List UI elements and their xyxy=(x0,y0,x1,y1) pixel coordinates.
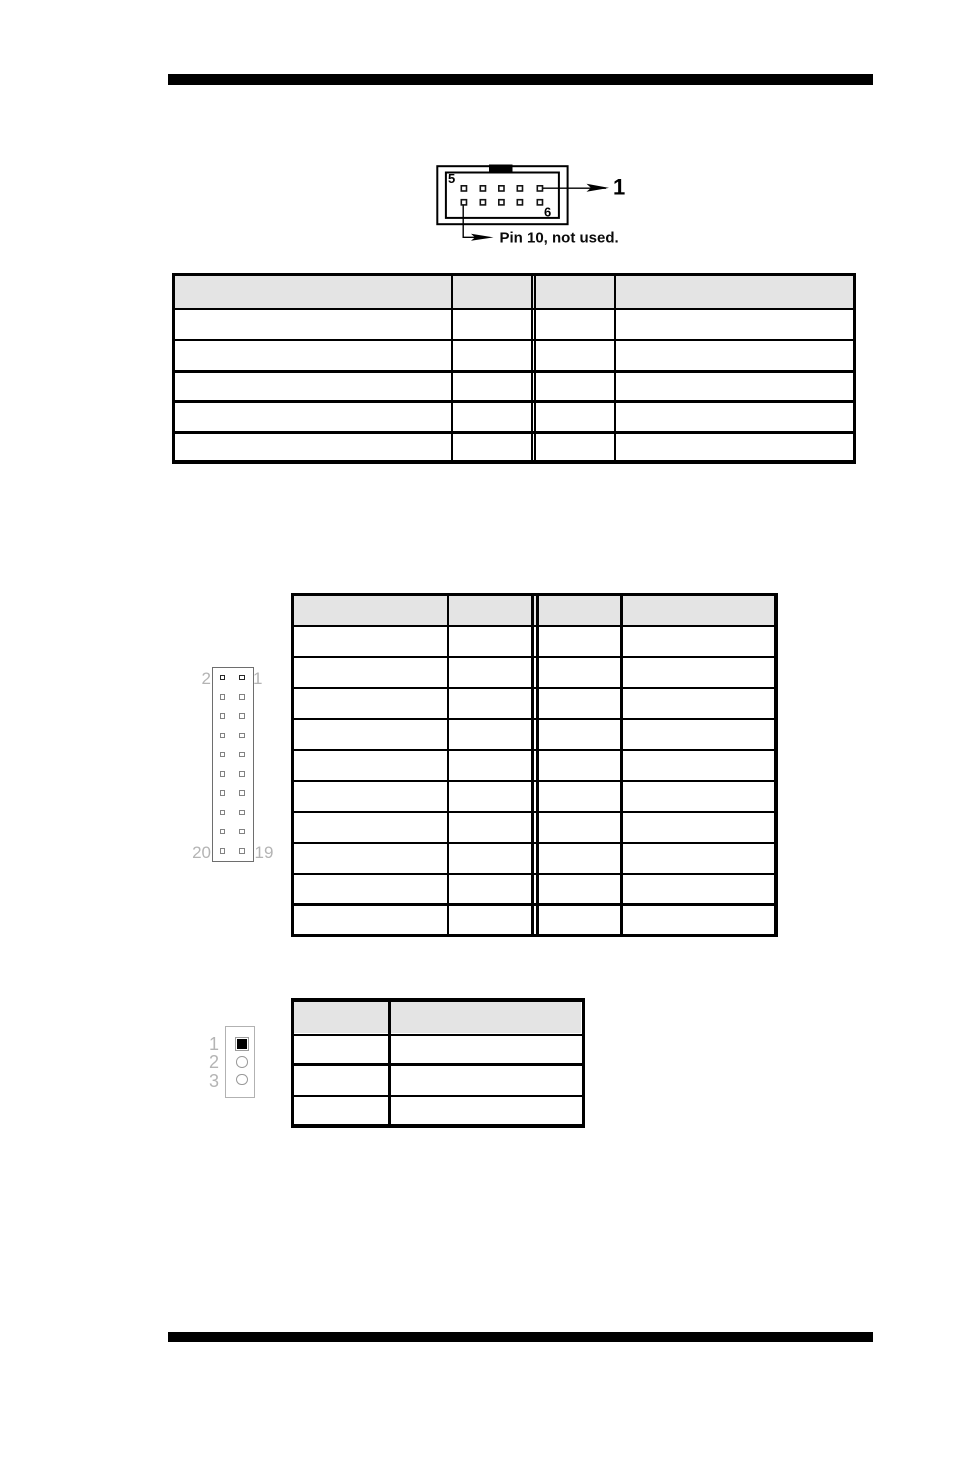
svg-text:5: 5 xyxy=(448,171,455,186)
svg-text:6: 6 xyxy=(544,205,551,220)
svg-text:1: 1 xyxy=(613,174,625,199)
svg-text:Pin 10, not used.: Pin 10, not used. xyxy=(500,229,619,246)
